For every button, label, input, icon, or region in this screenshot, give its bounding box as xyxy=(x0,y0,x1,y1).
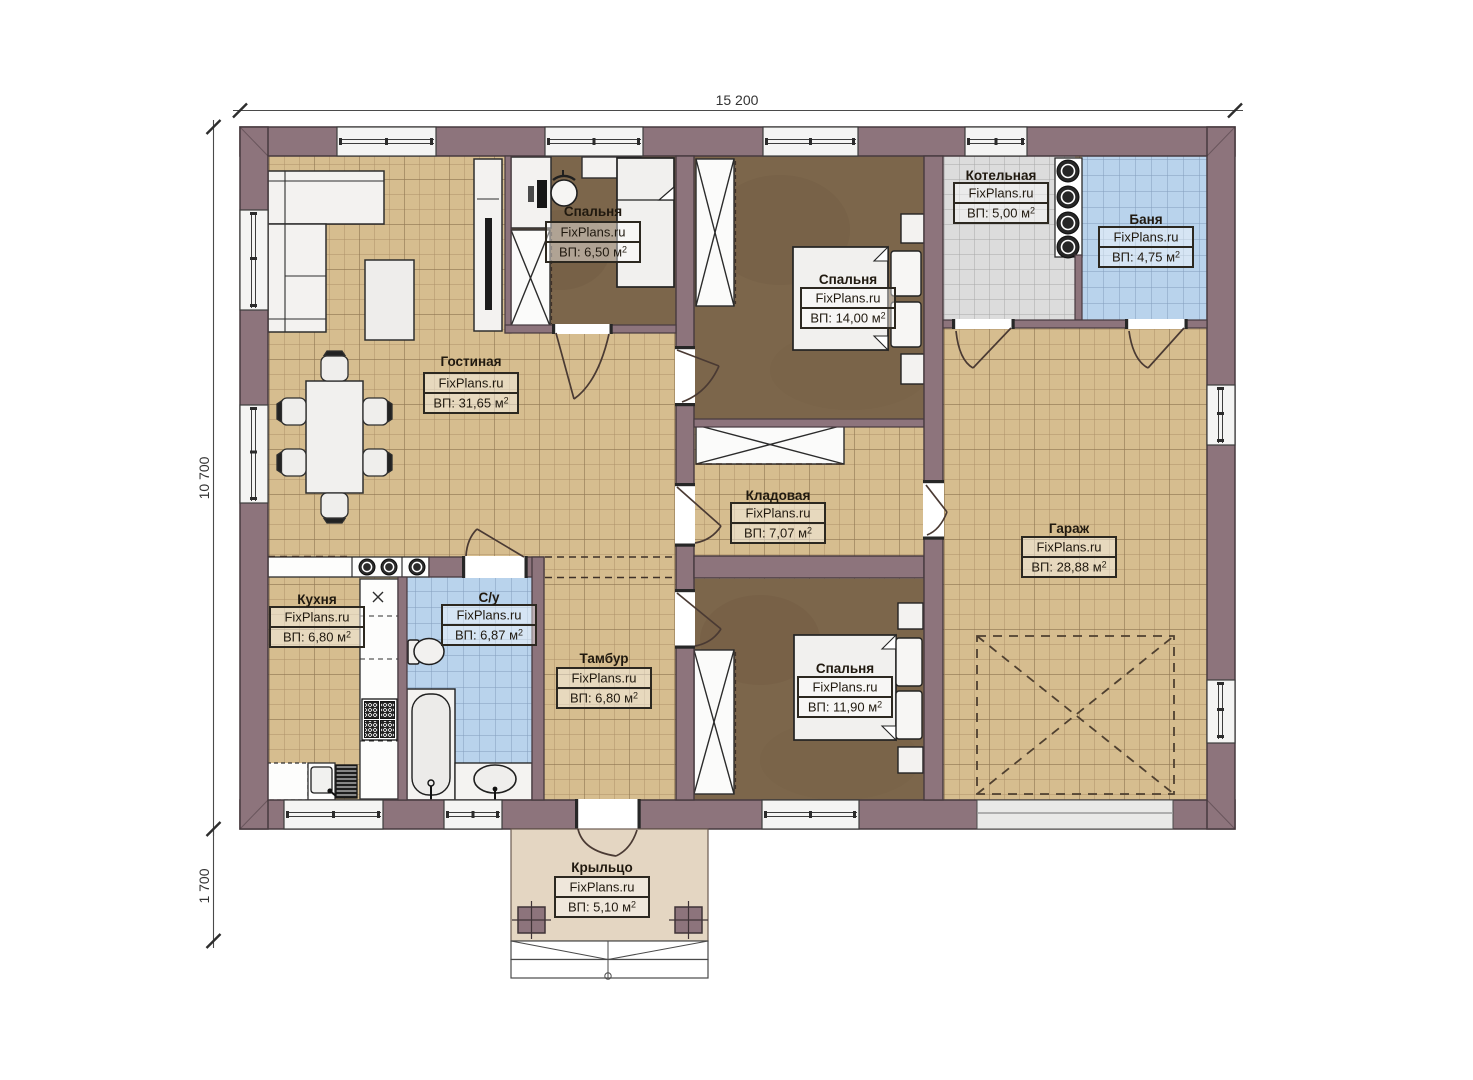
svg-text:ВП: 31,65 м2: ВП: 31,65 м2 xyxy=(433,396,508,411)
svg-text:FixPlans.ru: FixPlans.ru xyxy=(815,291,880,306)
svg-text:Котельная: Котельная xyxy=(966,168,1037,183)
svg-text:ВП: 5,10 м2: ВП: 5,10 м2 xyxy=(568,900,636,915)
svg-text:FixPlans.ru: FixPlans.ru xyxy=(438,376,503,391)
svg-text:15 200: 15 200 xyxy=(716,92,759,108)
svg-text:Спальня: Спальня xyxy=(564,204,622,219)
svg-text:FixPlans.ru: FixPlans.ru xyxy=(1036,540,1101,555)
svg-text:ВП: 6,80 м2: ВП: 6,80 м2 xyxy=(283,630,351,645)
svg-text:FixPlans.ru: FixPlans.ru xyxy=(456,608,521,623)
svg-text:Баня: Баня xyxy=(1129,212,1162,227)
svg-text:Кладовая: Кладовая xyxy=(746,488,811,503)
svg-text:ВП: 14,00 м2: ВП: 14,00 м2 xyxy=(810,311,885,326)
svg-text:ВП: 6,80 м2: ВП: 6,80 м2 xyxy=(570,691,638,706)
svg-text:Спальня: Спальня xyxy=(819,272,877,287)
svg-text:FixPlans.ru: FixPlans.ru xyxy=(745,506,810,521)
svg-text:ВП: 4,75 м2: ВП: 4,75 м2 xyxy=(1112,250,1180,265)
svg-text:FixPlans.ru: FixPlans.ru xyxy=(560,225,625,240)
svg-text:ВП: 7,07 м2: ВП: 7,07 м2 xyxy=(744,526,812,541)
svg-text:Кухня: Кухня xyxy=(297,592,336,607)
svg-text:FixPlans.ru: FixPlans.ru xyxy=(284,610,349,625)
svg-text:ВП: 6,50 м2: ВП: 6,50 м2 xyxy=(559,245,627,260)
svg-text:Спальня: Спальня xyxy=(816,661,874,676)
svg-text:С/у: С/у xyxy=(478,590,500,605)
svg-text:FixPlans.ru: FixPlans.ru xyxy=(1113,230,1178,245)
svg-text:Гостиная: Гостиная xyxy=(440,354,501,369)
svg-text:Крыльцо: Крыльцо xyxy=(571,860,632,875)
svg-text:ВП: 11,90 м2: ВП: 11,90 м2 xyxy=(808,700,882,715)
svg-text:1 700: 1 700 xyxy=(196,868,212,903)
svg-text:ВП: 5,00 м2: ВП: 5,00 м2 xyxy=(967,206,1035,221)
svg-text:FixPlans.ru: FixPlans.ru xyxy=(968,186,1033,201)
svg-text:FixPlans.ru: FixPlans.ru xyxy=(571,671,636,686)
svg-text:FixPlans.ru: FixPlans.ru xyxy=(569,880,634,895)
svg-text:ВП: 28,88 м2: ВП: 28,88 м2 xyxy=(1031,560,1106,575)
svg-text:ВП: 6,87 м2: ВП: 6,87 м2 xyxy=(455,628,523,643)
svg-text:FixPlans.ru: FixPlans.ru xyxy=(812,680,877,695)
svg-text:10 700: 10 700 xyxy=(196,456,212,499)
svg-text:Тамбур: Тамбур xyxy=(580,651,629,666)
svg-text:Гараж: Гараж xyxy=(1049,521,1090,536)
